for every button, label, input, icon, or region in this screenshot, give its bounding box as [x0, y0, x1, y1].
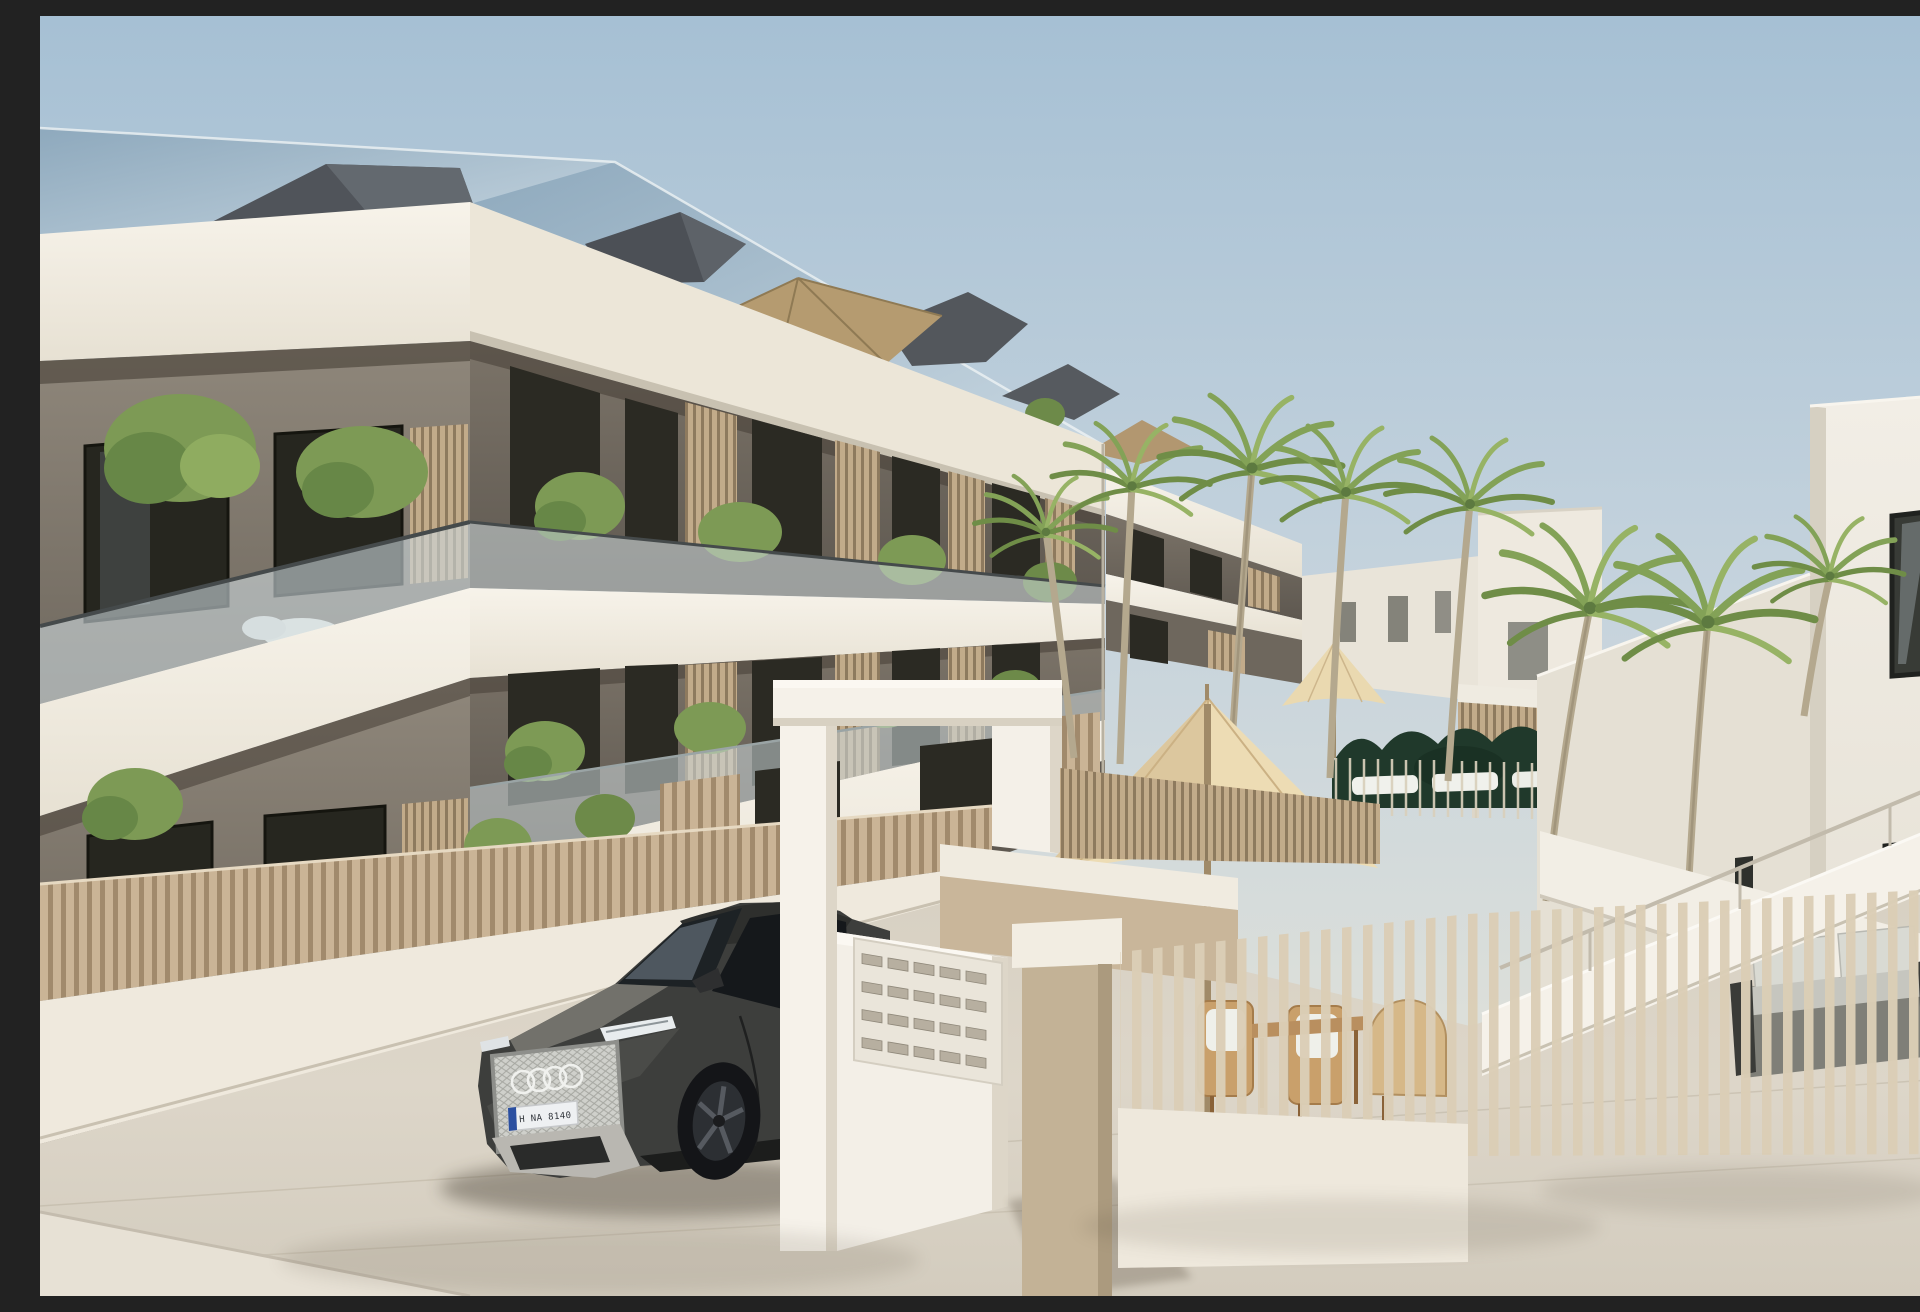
attic-slat-screen: [835, 440, 880, 562]
letterbox-grid: [854, 938, 1002, 1085]
attic-door: [625, 398, 678, 543]
ground-window: [920, 738, 995, 816]
right-picket-fence: [1468, 888, 1920, 1156]
courtyard-pillar-cap: [1012, 918, 1122, 968]
render-image: H NA 8140: [40, 16, 1920, 1296]
